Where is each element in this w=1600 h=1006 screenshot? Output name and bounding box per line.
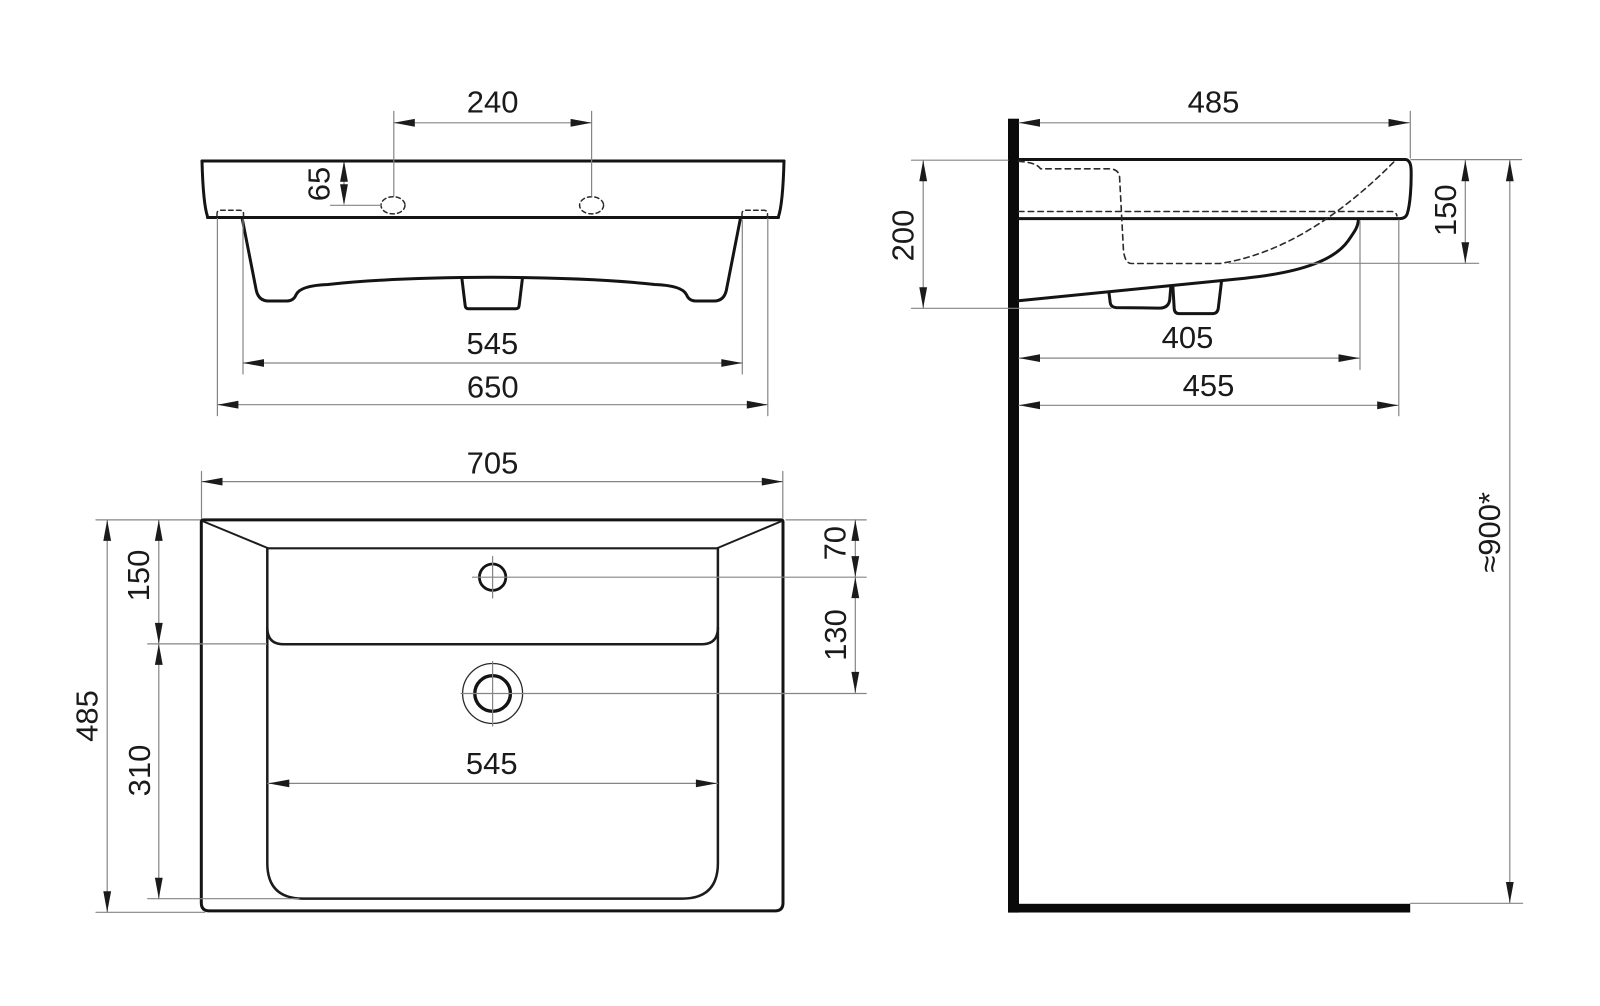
svg-text:70: 70 <box>818 526 853 560</box>
svg-text:455: 455 <box>1183 368 1235 403</box>
svg-text:485: 485 <box>70 690 105 742</box>
svg-text:130: 130 <box>818 609 853 661</box>
svg-text:200: 200 <box>886 210 921 262</box>
svg-text:150: 150 <box>121 550 156 602</box>
svg-text:545: 545 <box>467 326 519 361</box>
svg-text:310: 310 <box>122 745 157 797</box>
svg-text:240: 240 <box>467 85 519 120</box>
svg-text:650: 650 <box>467 369 519 404</box>
svg-text:705: 705 <box>467 445 519 480</box>
svg-text:≈900*: ≈900* <box>1472 492 1507 573</box>
svg-text:150: 150 <box>1428 184 1463 236</box>
svg-text:405: 405 <box>1162 320 1214 355</box>
svg-text:485: 485 <box>1188 85 1240 120</box>
svg-text:545: 545 <box>466 746 518 781</box>
svg-text:65: 65 <box>302 167 337 201</box>
